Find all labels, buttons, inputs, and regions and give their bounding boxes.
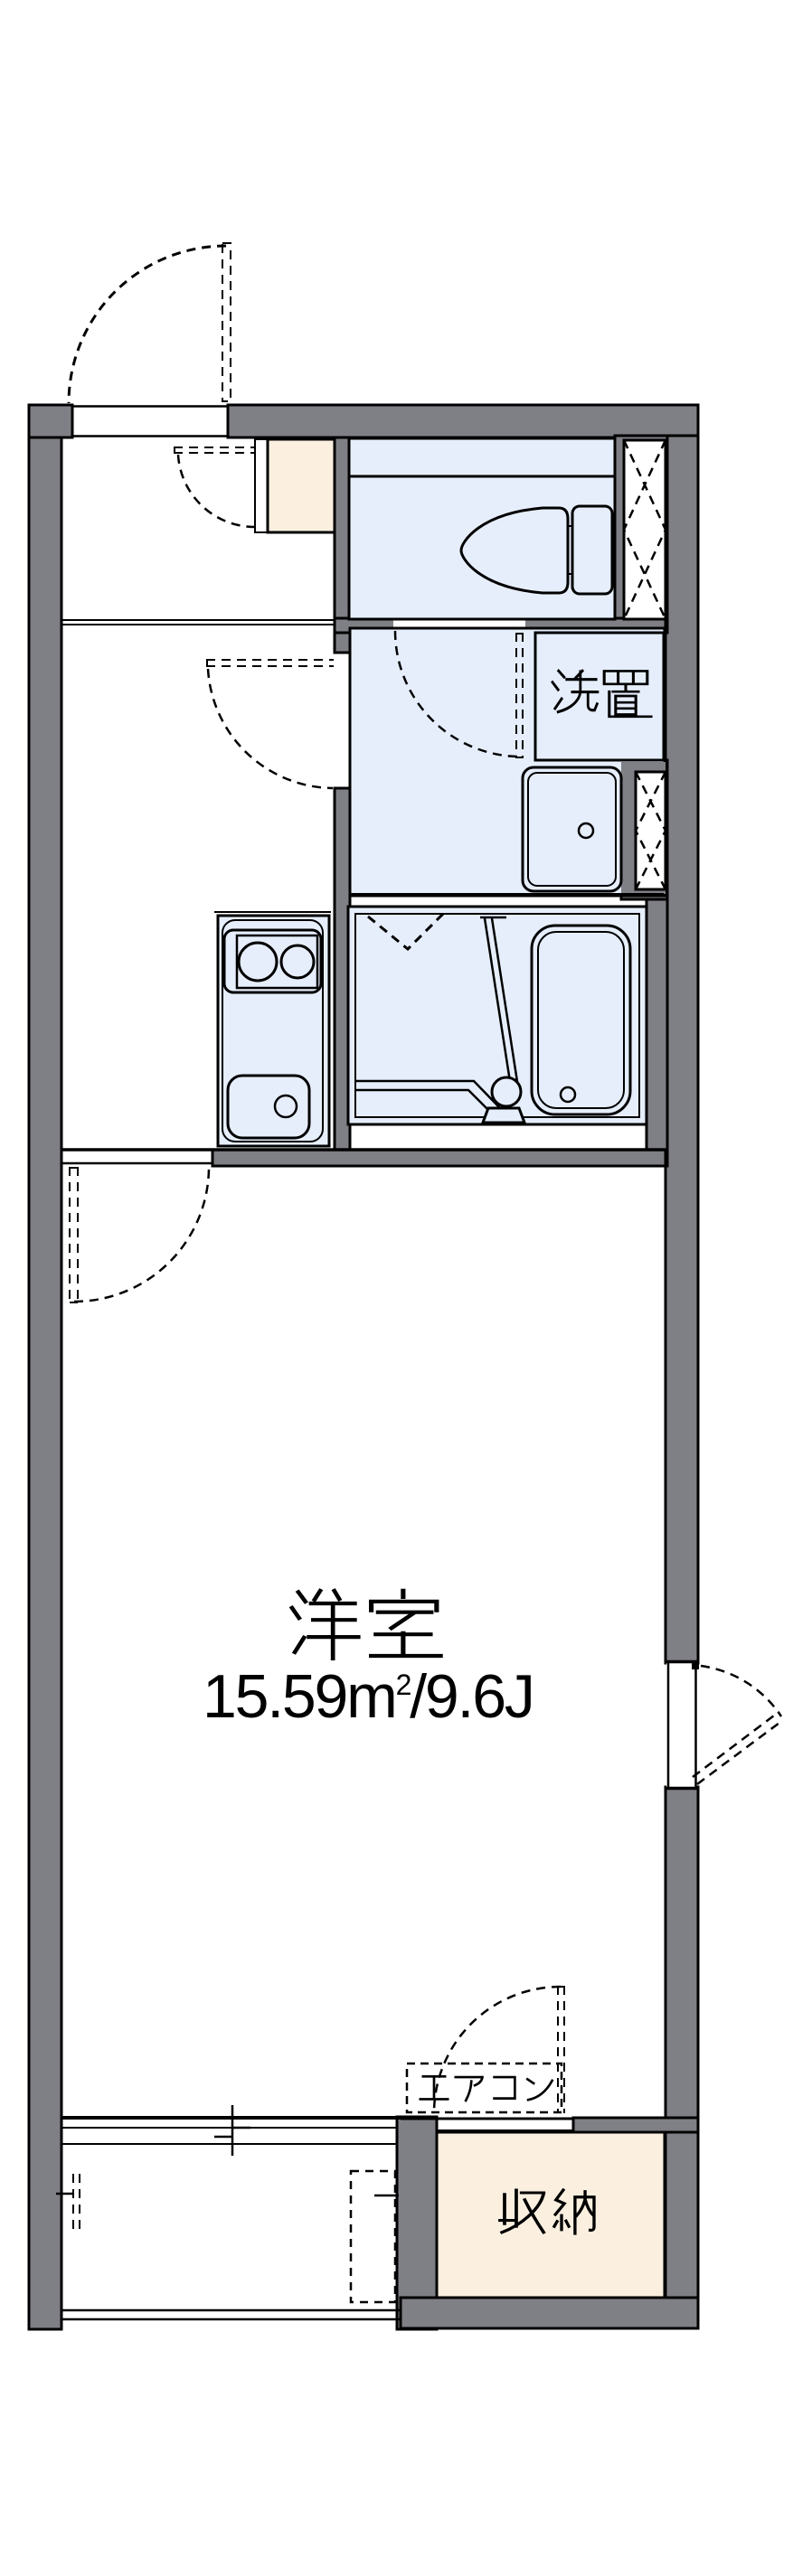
svg-text:15.59m2/9.6J: 15.59m2/9.6J (203, 1662, 533, 1731)
